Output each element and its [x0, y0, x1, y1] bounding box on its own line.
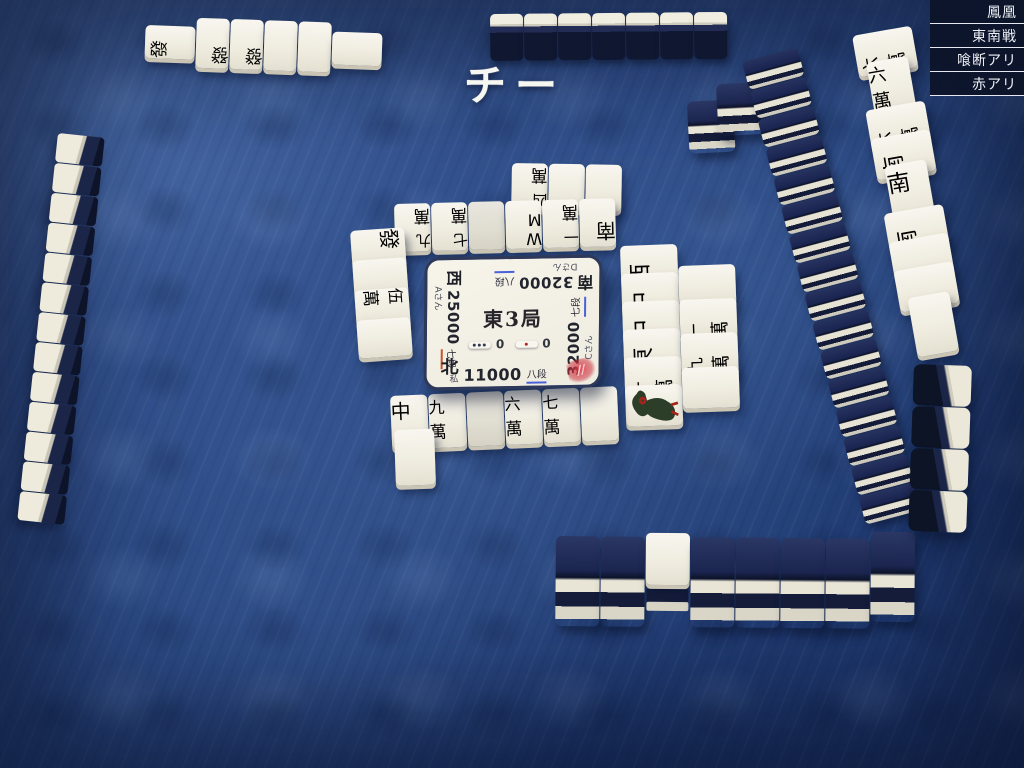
player-name-top: Dさん: [443, 261, 577, 273]
tile-face: 一萬: [542, 199, 579, 248]
pdot: [395, 448, 404, 457]
group-top-player-meld-row: 發發發: [144, 16, 383, 74]
hidden-tile-side: [24, 431, 74, 465]
pdot: [383, 318, 393, 328]
hidden-tile-side: [27, 402, 77, 436]
tile-hatsu: 發: [145, 24, 196, 59]
hchar hatsu: 發: [145, 24, 172, 58]
wall-tile: [600, 536, 645, 626]
tile-face: 發: [229, 19, 264, 70]
stick-counters: 0 0: [427, 336, 599, 353]
hidden-tile-back: [660, 12, 693, 59]
group-left-player-discards: 發伍萬: [350, 227, 413, 358]
stick sd: [646, 557, 652, 569]
faceinner: 發: [145, 24, 172, 58]
wall-tile: [825, 538, 870, 628]
mman: 萬: [429, 417, 467, 444]
pdot r: [370, 259, 380, 269]
pdot: [577, 147, 585, 155]
pdot: [401, 317, 411, 327]
pdot: [342, 53, 353, 64]
tile-p8: [394, 429, 436, 486]
tile-face: WM: [505, 200, 542, 249]
faceinner: 南: [579, 217, 616, 247]
mman: 萬: [431, 204, 468, 230]
pdot: [683, 399, 693, 409]
tile-face: 發: [145, 24, 196, 59]
pdot: [379, 258, 389, 268]
tile-s1: [625, 384, 683, 427]
tile-face: 發: [195, 18, 230, 69]
stick sr: [582, 435, 588, 447]
mman: 萬: [505, 413, 543, 440]
hidden-tile-side: [908, 490, 967, 533]
tile-face: [646, 533, 690, 585]
rule-game-type: 東南戦: [930, 24, 1024, 48]
hidden-tile-side: [910, 448, 969, 491]
seat-wind-left: 西: [445, 270, 462, 286]
hchar chun: 中: [390, 394, 428, 425]
pdot: [397, 257, 407, 267]
mnum: 七: [432, 229, 469, 251]
hidden-tile-side: [46, 223, 96, 257]
score-panel: 南 32000 八段 Dさん 西 25000 七段 Aさん 32000 七段 C…: [423, 254, 602, 390]
group-bottom-wall: [555, 536, 915, 629]
faceinner: 一萬: [542, 201, 579, 248]
stick sd: [646, 545, 652, 557]
hidden-tile-side: [55, 133, 105, 167]
riichi-stick-icon: [515, 340, 537, 347]
pdot: [394, 430, 403, 439]
rule-kuitan: 喰断アリ: [930, 48, 1024, 72]
pdot r: [287, 51, 297, 61]
tile-p2: [331, 31, 382, 66]
pdot: [338, 321, 348, 331]
wm: W: [506, 229, 542, 249]
stick sd: [583, 459, 589, 471]
pdot: [577, 155, 585, 163]
mman: 萬: [543, 412, 581, 439]
honba-stick-icon: [469, 341, 491, 348]
wall-tile: [870, 532, 915, 622]
hidden-tile-side: [52, 163, 102, 197]
stick sd: [581, 423, 587, 435]
tile-p9: [356, 317, 413, 359]
wall-tile: [555, 536, 600, 626]
tile-m1: 一萬: [542, 199, 579, 248]
pdot: [286, 61, 296, 71]
score-top: 32000: [519, 273, 574, 290]
stick sr: [580, 399, 586, 411]
pdot r: [356, 320, 366, 330]
pdot: [577, 179, 585, 187]
hidden-tile-side: [33, 342, 83, 376]
hidden-tile-back: [626, 13, 659, 60]
faceinner: 發: [195, 42, 229, 69]
wall-tile: [780, 538, 825, 628]
call-banner: チー: [430, 52, 600, 113]
tile-face: [331, 31, 382, 66]
hidden-tile-side: [49, 193, 99, 227]
tile-haku: [468, 201, 505, 250]
stick sd: [582, 447, 588, 459]
stick sr: [583, 471, 589, 483]
pdot: [396, 484, 405, 493]
tile-face: [466, 391, 505, 447]
pdot: [287, 41, 297, 51]
rank-bottom: 八段: [527, 370, 547, 384]
pdot: [576, 187, 584, 195]
rule-aka: 赤アリ: [930, 72, 1024, 96]
wall-tile: [690, 537, 735, 627]
group-bottom-player-discards-row2: [394, 429, 436, 486]
hidden-tile-side: [913, 364, 972, 407]
dora-indicator-tile: [646, 533, 690, 585]
group-right-player-discards-col1: 西中中東一萬: [620, 244, 683, 427]
tile-face: 南: [579, 198, 616, 247]
pdot: [703, 398, 713, 408]
pdot: [331, 53, 342, 64]
hchar nan: 南: [579, 217, 616, 247]
tile-hatsu: 發: [229, 19, 264, 70]
tile-s9: [580, 386, 619, 442]
pdot: [388, 258, 398, 268]
faceinner: 南: [884, 159, 931, 200]
hchar nan: 南: [884, 159, 931, 200]
honba-count: 0: [496, 337, 504, 351]
tile-s8: WM: [505, 200, 542, 249]
pdot r: [361, 260, 371, 270]
tile-face: 七萬: [542, 388, 581, 444]
pdot r: [374, 319, 384, 329]
tile-face: [468, 201, 505, 250]
pdot: [395, 466, 404, 475]
pdot: [577, 163, 585, 171]
faceinner: 中: [390, 394, 428, 425]
tile-nan: 南: [579, 198, 616, 247]
pdot: [395, 457, 404, 466]
pdot big: [310, 52, 331, 73]
group-right-player-discards-col2: 一萬九萬: [678, 264, 740, 409]
tile-face: [297, 21, 332, 72]
faceinner: 七萬: [542, 388, 581, 439]
mman: 萬: [512, 164, 548, 190]
wm: M: [505, 210, 541, 230]
stick sd: [581, 411, 587, 423]
mman: 萬: [542, 201, 579, 227]
pdot: [394, 439, 403, 448]
rules-panel: 鳳凰 東南戦 喰断アリ 赤アリ: [930, 0, 1024, 96]
stick sd: [580, 387, 586, 399]
pdot: [392, 318, 402, 328]
mnum: 一: [543, 226, 580, 248]
pdot: [329, 322, 339, 332]
pdot: [743, 396, 753, 406]
tile-haku: [466, 391, 505, 447]
round-indicator: 東3局: [427, 301, 599, 333]
mnum: 九: [428, 393, 466, 419]
tile-m7: 七萬: [542, 388, 581, 444]
mnum: 七: [542, 388, 580, 414]
hchar hatsu: 發: [195, 42, 229, 69]
faceinner: 六萬: [504, 389, 543, 440]
hchar hatsu: 發: [229, 43, 263, 70]
hidden-tile-side: [17, 491, 67, 525]
pdot r: [365, 320, 375, 330]
group-left-player-hand: [17, 133, 104, 525]
pdot: [396, 475, 405, 484]
riichi-count: 0: [542, 336, 550, 350]
score-bottom: 11000: [463, 367, 521, 385]
hidden-tile-back: [694, 12, 727, 59]
pdot r: [953, 262, 965, 274]
pdot: [577, 171, 585, 179]
tile-m7: 七萬: [431, 202, 468, 251]
tile-p9: [682, 366, 740, 409]
tile-face: [682, 366, 740, 409]
tile-face: [625, 384, 683, 427]
hidden-tile-side: [20, 461, 70, 495]
rank-top: 八段: [495, 271, 515, 285]
tile-m6: 六萬: [504, 389, 543, 445]
tile-hatsu: 發: [195, 18, 230, 69]
pdot: [325, 262, 335, 272]
stick sd: [646, 569, 652, 581]
mahjong-table: 發發發四萬九萬七萬WM一萬南發伍萬西中中東一萬一萬九萬六萬六萬六萬南南南中九萬六…: [0, 0, 1024, 768]
group-top-player-discards-row1: 九萬七萬WM一萬南: [394, 198, 616, 252]
pdot: [753, 396, 763, 406]
mnum: 六: [504, 389, 542, 415]
tile-face: 六萬: [504, 389, 543, 445]
tile-face: [263, 20, 298, 71]
pdot: [693, 398, 703, 408]
pdot r: [713, 398, 723, 408]
tile-face: [580, 386, 619, 442]
pdot: [334, 262, 344, 272]
tile-face: 七萬: [431, 202, 468, 251]
player-name-bottom: 私: [449, 376, 458, 385]
pdot: [343, 261, 353, 271]
hidden-tile-side: [39, 282, 89, 316]
pdot: [968, 289, 980, 301]
pdot: [347, 321, 357, 331]
dora-indicator-slot: [645, 537, 690, 627]
tile-face: [356, 317, 413, 359]
pdot r: [723, 397, 733, 407]
pdot: [763, 396, 773, 406]
tile-p3: [263, 20, 298, 71]
hidden-tile-side: [42, 252, 92, 286]
tile-p1: [297, 21, 332, 72]
hidden-tile-side: [911, 406, 970, 449]
pdot r: [733, 397, 743, 407]
hidden-tile-side: [30, 372, 80, 406]
faceinner: 七萬: [431, 204, 468, 251]
pdot r: [352, 260, 362, 270]
wall-tile: [735, 538, 780, 628]
pdot: [396, 493, 405, 502]
group-right-player-hand: [908, 364, 972, 533]
stick sd: [584, 483, 590, 495]
tile-face: [394, 429, 436, 486]
stick sd: [646, 533, 652, 545]
hidden-tile-side: [36, 312, 86, 346]
faceinner: 發: [229, 43, 263, 70]
rule-room: 鳳凰: [930, 0, 1024, 24]
faceinner: WM: [505, 210, 542, 249]
